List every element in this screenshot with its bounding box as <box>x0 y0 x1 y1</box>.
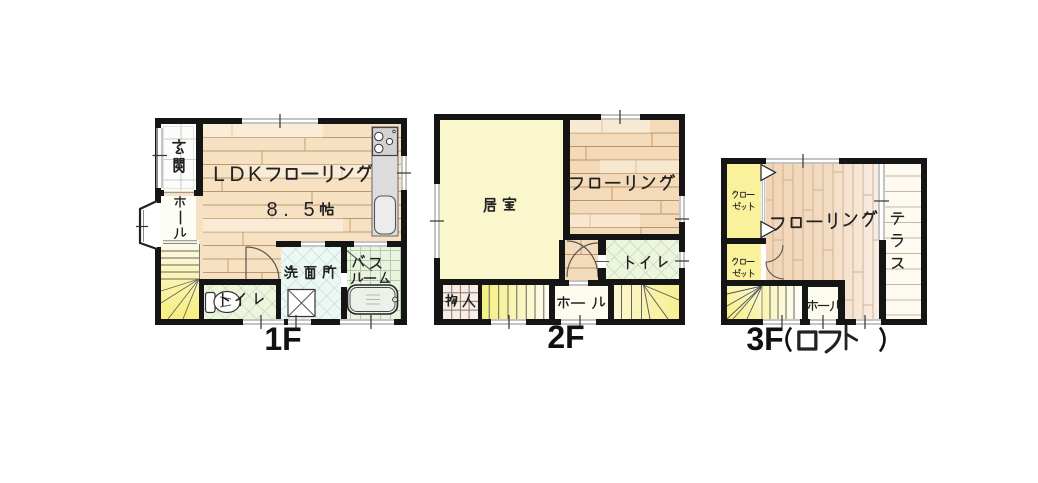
svg-text:L: L <box>213 163 225 186</box>
svg-text:8: 8 <box>266 199 277 221</box>
svg-text:K: K <box>248 163 262 186</box>
svg-text:1F: 1F <box>264 321 301 357</box>
svg-text:2F: 2F <box>547 319 584 355</box>
svg-text:3F: 3F <box>746 321 783 357</box>
svg-text:.: . <box>283 199 289 221</box>
svg-text:D: D <box>229 163 244 186</box>
svg-text:5: 5 <box>303 199 314 221</box>
